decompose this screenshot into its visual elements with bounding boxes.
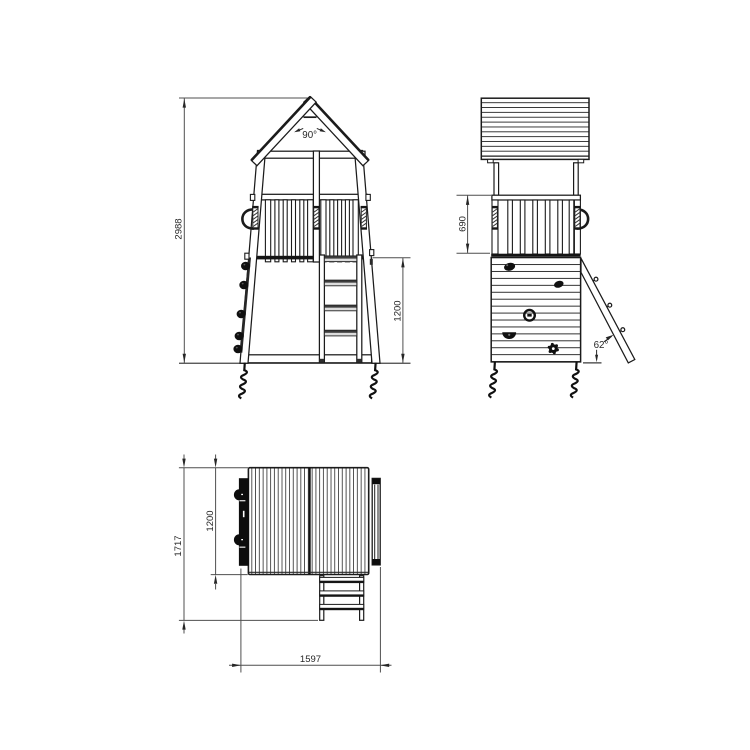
svg-text:690: 690 [457, 216, 468, 232]
svg-text:1597: 1597 [300, 654, 321, 665]
svg-text:1200: 1200 [393, 300, 404, 321]
svg-text:1717: 1717 [173, 535, 184, 556]
svg-text:90°: 90° [302, 130, 317, 141]
svg-text:62°: 62° [594, 340, 609, 351]
svg-text:1200: 1200 [205, 510, 216, 531]
svg-text:2988: 2988 [174, 218, 185, 239]
